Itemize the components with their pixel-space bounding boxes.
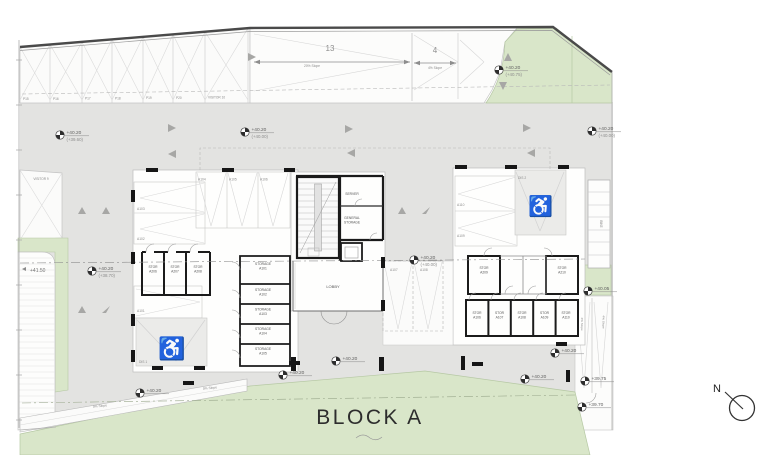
ramp-area: [250, 28, 517, 103]
plan-label: A110: [457, 203, 465, 207]
plan-label: A106: [260, 178, 268, 182]
plan-label: STORA207: [170, 265, 180, 273]
block-title: BLOCK A: [316, 406, 423, 429]
plan-label: STORA209: [479, 266, 489, 274]
plan-label: STORA208: [193, 265, 203, 273]
plan-label: 4% Slope: [428, 66, 442, 70]
plan-label: SERVER: [345, 192, 359, 196]
north-arrow: N: [713, 383, 754, 421]
elevation-subvalue: (+39.60): [67, 137, 84, 142]
elevation-value: +40.20: [99, 266, 114, 272]
plan-label: LOBBY: [326, 284, 340, 289]
plan-label: A108: [420, 268, 428, 272]
elevation-value: +40.20: [421, 255, 436, 261]
plan-label: STORA106: [472, 311, 482, 319]
wheelchair-icon: ♿: [158, 336, 185, 361]
plan-label: 4: [433, 46, 438, 55]
plan-label: A101: [137, 309, 145, 313]
plan-label: A103: [137, 207, 145, 211]
plan-label: 4% Slope: [580, 317, 584, 331]
plan-label: GENERALSTORAGE: [344, 216, 361, 224]
plan-label: 4% Slope: [602, 315, 606, 329]
plan-label: P16: [53, 97, 59, 101]
plan-label: P15: [23, 97, 29, 101]
elevation-value: +39.75: [592, 376, 607, 382]
north-label: N: [713, 383, 721, 395]
plan-label: P17: [85, 97, 91, 101]
right-building-west: [383, 261, 453, 345]
plan-label: VISITOR 10: [208, 96, 225, 100]
plan-label: P18: [115, 97, 121, 101]
plan-label: A105: [229, 178, 237, 182]
elevation-value: +40.20: [252, 127, 267, 133]
plan-label: A109: [457, 234, 465, 238]
elevation-value: +40.20: [506, 65, 521, 71]
hatched-area: [18, 252, 55, 430]
elevation-subvalue: (+40.75): [506, 72, 523, 77]
elevation-value: +40.20: [599, 126, 614, 132]
plan-label: P19: [146, 96, 152, 100]
elevation-value: +40.20: [562, 348, 577, 354]
plan-label: P20: [176, 96, 182, 100]
plan-label: BIKE: [599, 220, 603, 227]
elevation-value: +40.20: [532, 374, 547, 380]
elevation-value: +40.20: [343, 356, 358, 362]
plan-label: +41.50: [30, 268, 46, 274]
plan-label: STORA206: [148, 265, 158, 273]
plan-label: 13: [326, 44, 335, 53]
plan-label: 20% Slope: [304, 64, 320, 68]
plan-label: STORA210: [557, 266, 567, 274]
elevation-value: +40.20: [290, 370, 305, 376]
elevation-value: +39.70: [589, 402, 604, 408]
elevation-value: +40.05: [595, 286, 610, 292]
top-parking-row: [20, 28, 250, 103]
plan-label: STORA110: [561, 311, 571, 319]
site-plan-svg: ♿ ♿: [0, 0, 768, 455]
elevation-subvalue: (+40.00): [599, 133, 616, 138]
bike-storage: [588, 180, 610, 268]
elevation-value: +40.20: [67, 130, 82, 136]
plan-label: A102: [137, 237, 145, 241]
plan-label: DIS 1: [139, 360, 147, 364]
plan-label: STORA107: [495, 311, 505, 319]
elevation-subvalue: (+40.00): [421, 262, 438, 267]
plan-label: DIS 2: [518, 176, 526, 180]
plan-label: STORA108: [517, 311, 527, 319]
elevation-subvalue: (+40.00): [252, 134, 269, 139]
elevation-subvalue: (+38.70): [99, 273, 116, 278]
plan-label: A107: [390, 268, 398, 272]
wheelchair-icon: ♿: [528, 194, 553, 218]
elevation-value: +40.20: [147, 388, 162, 394]
plan-label: A104: [198, 178, 206, 182]
plan-label: VISITOR 9: [33, 177, 49, 181]
plan-label: STORA109: [540, 311, 550, 319]
north-arrow-needle: [725, 392, 743, 409]
floor-plan-canvas: ♿ ♿: [0, 0, 768, 455]
